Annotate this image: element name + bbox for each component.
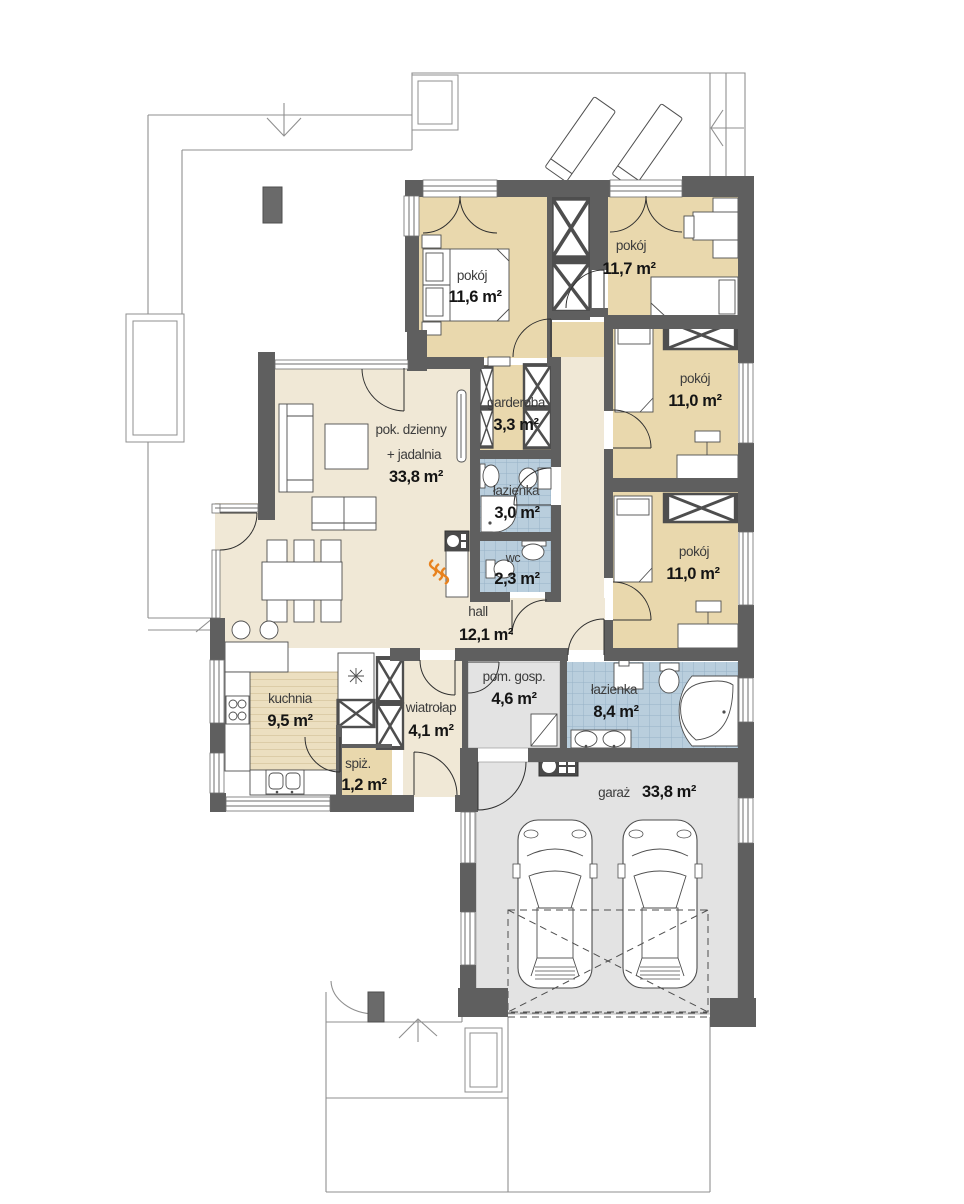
window xyxy=(210,660,224,723)
window xyxy=(739,363,753,443)
chimney-block-bottom xyxy=(368,992,384,1022)
bed-double xyxy=(422,235,509,335)
svg-text:11,0 m²: 11,0 m² xyxy=(668,392,722,410)
corridor-floor-strip xyxy=(561,357,604,602)
svg-text:wc: wc xyxy=(505,551,521,565)
svg-text:garderoba: garderoba xyxy=(487,395,546,410)
svg-text:pokój: pokój xyxy=(679,544,710,559)
bed-single xyxy=(651,277,738,317)
svg-text:kuchnia: kuchnia xyxy=(268,691,313,706)
room-floor-living-bay xyxy=(215,503,275,620)
svg-text:4,6 m²: 4,6 m² xyxy=(491,690,537,708)
car xyxy=(513,820,597,988)
fridge-icon xyxy=(338,653,374,727)
svg-text:4,1 m²: 4,1 m² xyxy=(408,722,454,740)
loveseat xyxy=(312,497,376,530)
svg-text:pokój: pokój xyxy=(680,371,711,386)
coffee-table xyxy=(325,424,368,469)
window xyxy=(423,180,497,197)
svg-text:9,5 m²: 9,5 m² xyxy=(267,712,313,730)
wardrobe xyxy=(552,198,590,312)
svg-text:pom. gosp.: pom. gosp. xyxy=(483,669,546,684)
svg-text:2,3 m²: 2,3 m² xyxy=(494,570,540,588)
corridor-floor xyxy=(552,322,604,357)
svg-text:11,6 m²: 11,6 m² xyxy=(448,288,502,306)
double-sink-icon xyxy=(571,730,631,748)
wardrobe xyxy=(666,494,737,522)
svg-text:spiż.: spiż. xyxy=(345,756,371,771)
svg-text:łazienka: łazienka xyxy=(591,682,638,697)
door-leaf-garderoba xyxy=(488,357,510,366)
svg-text:1,2 m²: 1,2 m² xyxy=(341,776,387,794)
window xyxy=(226,797,330,811)
svg-text:3,0 m²: 3,0 m² xyxy=(494,504,540,522)
svg-text:8,4 m²: 8,4 m² xyxy=(593,703,639,721)
bed-single xyxy=(614,496,652,582)
window xyxy=(739,678,753,722)
svg-text:garaż: garaż xyxy=(598,785,630,800)
sun-loungers xyxy=(545,97,683,189)
chimney-block-top xyxy=(263,187,282,223)
svg-text:łazienka: łazienka xyxy=(493,483,540,498)
radiator xyxy=(457,390,466,462)
svg-text:pokój: pokój xyxy=(616,238,647,253)
svg-text:33,8 m²: 33,8 m² xyxy=(389,468,444,486)
car xyxy=(618,820,702,988)
svg-text:pokój: pokój xyxy=(457,268,488,283)
svg-text:hall: hall xyxy=(468,604,488,619)
svg-text:wiatrołap: wiatrołap xyxy=(405,700,456,715)
toilet-icon xyxy=(659,663,679,693)
svg-text:3,3 m²: 3,3 m² xyxy=(493,416,539,434)
pool-planter xyxy=(126,314,184,442)
window xyxy=(610,180,682,197)
kitchen-sink-icon xyxy=(266,770,304,794)
wardrobe xyxy=(377,658,403,748)
window xyxy=(461,812,475,863)
window xyxy=(404,196,419,236)
window xyxy=(739,798,753,843)
svg-text:11,0 m²: 11,0 m² xyxy=(666,565,720,583)
room-label-garaz: garaż 33,8 m² xyxy=(598,783,697,801)
floor-plan-drawing: pokój 11,6 m² pokój 11,7 m² pokój 11,0 m… xyxy=(0,0,964,1204)
window xyxy=(461,912,475,965)
glazing-living-top xyxy=(275,360,408,369)
svg-text:11,7 m²: 11,7 m² xyxy=(602,260,656,278)
svg-text:33,8 m²: 33,8 m² xyxy=(642,783,697,801)
dining-table-set xyxy=(262,540,342,622)
window xyxy=(739,532,753,605)
floor-plan-page: pokój 11,6 m² pokój 11,7 m² pokój 11,0 m… xyxy=(0,0,964,1204)
svg-text:+ jadalnia: + jadalnia xyxy=(387,447,442,462)
svg-text:pok. dzienny: pok. dzienny xyxy=(376,422,448,437)
window xyxy=(210,753,224,793)
corner-bathtub-icon xyxy=(679,676,738,746)
svg-text:12,1 m²: 12,1 m² xyxy=(459,626,514,644)
water-heater xyxy=(531,714,557,746)
stove-icon xyxy=(226,696,249,724)
bed-single xyxy=(615,325,653,412)
sofa xyxy=(279,404,313,492)
